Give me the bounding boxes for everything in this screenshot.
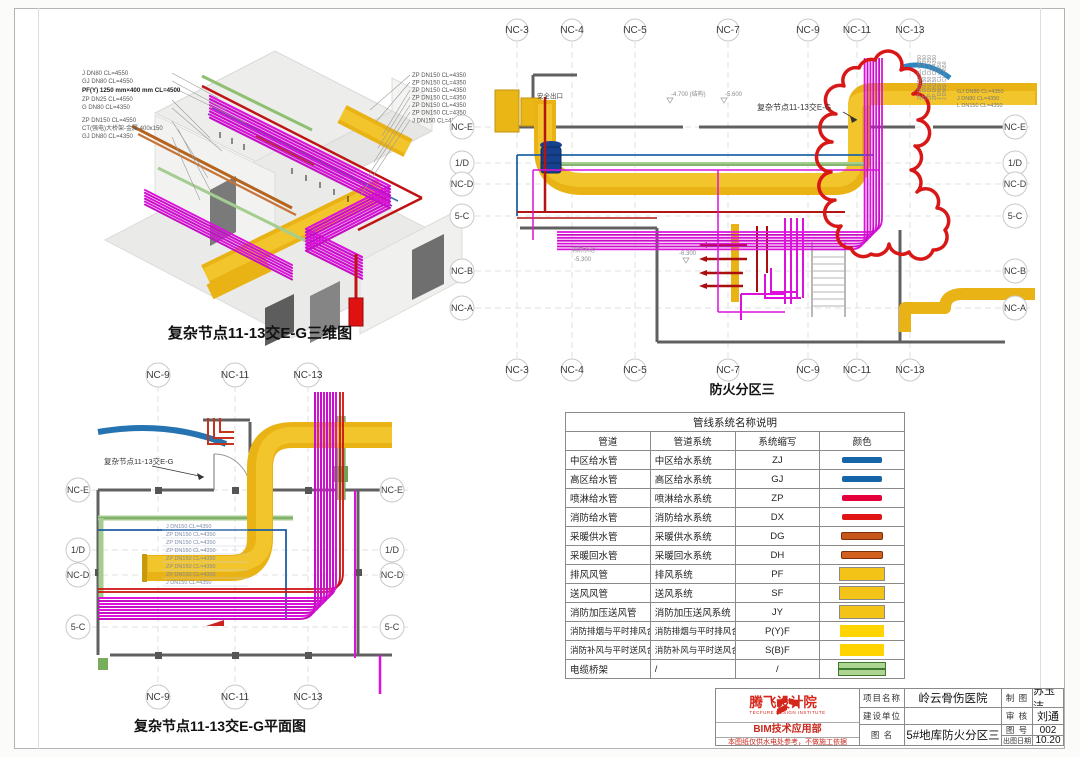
pipe-tag: ZP DN150 CL=4350 — [166, 572, 216, 578]
system-name: 采暖回水系统 — [650, 546, 735, 565]
reviewer-label: 审 核 — [1001, 707, 1032, 724]
pipe-tag: ZP DN150 CL=4350 — [166, 540, 216, 546]
legend-row: 高区给水管高区给水系统GJ — [566, 470, 905, 489]
project-name-value: 岭云骨伤医院 — [904, 689, 1001, 707]
company-area: 腾飞设计院 TECFURE DESIGN INSTITUTE BIM技术应用部 … — [716, 689, 859, 747]
pipe-tag: GJ DN80 CL=4550 — [82, 79, 134, 85]
pipe-name: 消防给水管 — [566, 508, 651, 527]
pipe-tag: ZP DN150 CL=4350 — [166, 564, 216, 570]
system-name: 消防给水系统 — [650, 508, 735, 527]
plan-title: 防火分区三 — [709, 382, 774, 397]
pipe-name: 中区给水管 — [566, 451, 651, 470]
grid-label: NC-E — [381, 485, 403, 495]
color-swatch — [820, 603, 905, 622]
reviewer-value: 刘通 — [1032, 707, 1063, 724]
grid-bubbles-left: NC-E 1/D NC-D 5-C NC-B NC-A — [450, 115, 474, 320]
disclaimer-text: 本图纸仅供水电处参考，不做施工依据 — [716, 737, 859, 747]
grid-label: NC-5 — [623, 365, 647, 376]
node-callout: 复杂节点11-13交E-G — [104, 456, 204, 480]
green-cable-tray — [98, 416, 348, 670]
system-code: PF — [735, 565, 820, 584]
pipe-name: 喷淋给水管 — [566, 489, 651, 508]
grid-bubbles-top: NC-3 NC-4 NC-5 NC-7 NC-9 NC-11 NC-13 — [505, 19, 925, 41]
title-block: 腾飞设计院 TECFURE DESIGN INSTITUTE BIM技术应用部 … — [715, 688, 1064, 746]
system-code: SF — [735, 584, 820, 603]
legend-header-color: 颜色 — [820, 432, 905, 451]
issue-date-value: 10.20 — [1032, 735, 1063, 745]
legend-header-pipe: 管道 — [566, 432, 651, 451]
pipe-name: 高区给水管 — [566, 470, 651, 489]
color-swatch — [820, 489, 905, 508]
pipe-tag: J DN80 CL=4550 — [82, 71, 129, 77]
system-name: 采暖供水系统 — [650, 527, 735, 546]
client-value — [904, 707, 1001, 724]
grid-label: NC-13 — [294, 692, 323, 703]
color-swatch — [820, 584, 905, 603]
issue-date-label: 出图日期 — [1001, 735, 1032, 745]
node-callout: 复杂节点11-13交E-G — [757, 102, 831, 112]
system-code: DH — [735, 546, 820, 565]
inner-frame-left — [38, 8, 39, 749]
grid-label: NC-7 — [716, 365, 740, 376]
pipe-tag: ZP DN150 CL=4350 — [166, 556, 216, 562]
system-code: P(Y)F — [735, 622, 820, 641]
color-swatch — [820, 641, 905, 660]
system-code: / — [735, 660, 820, 679]
drawing-no-label: 图 号 — [1001, 724, 1032, 735]
view-3d-title: 复杂节点11-13交E-G三维图 — [167, 324, 352, 342]
legend-row: 电缆桥架// — [566, 660, 905, 679]
legend-row: 喷淋给水管喷淋给水系统ZP — [566, 489, 905, 508]
plan-title: 复杂节点11-13交E-G平面图 — [133, 718, 306, 734]
grid-label: 1/D — [385, 545, 400, 555]
grid-label: NC-D — [451, 179, 474, 189]
grid-label: 5-C — [455, 211, 470, 221]
grid-bubbles-bottom: NC-3 NC-4 NC-5 NC-7 NC-9 NC-11 NC-13 — [505, 359, 925, 381]
grid-label: NC-11 — [843, 365, 872, 376]
grid-label: NC-9 — [796, 365, 820, 376]
drawing-name-label: 图 名 — [859, 724, 904, 745]
system-code: JY — [735, 603, 820, 622]
legend-row: 排风风管排风系统PF — [566, 565, 905, 584]
elevation-label: -5.600 — [725, 92, 743, 98]
pipe-tag: GJ DN80 CL=4350 — [957, 89, 1004, 95]
color-swatch — [820, 546, 905, 565]
grid-label: NC-E — [451, 122, 473, 132]
legend-header-system: 管道系统 — [650, 432, 735, 451]
pool-elevation: -5.300 — [574, 257, 592, 263]
color-swatch — [820, 451, 905, 470]
grid-label: NC-11 — [843, 25, 872, 36]
system-code: GJ — [735, 470, 820, 489]
pipe-name: 采暖供水管 — [566, 527, 651, 546]
building-slabs — [105, 51, 462, 346]
grid-label: NC-B — [451, 266, 473, 276]
system-name: 排风系统 — [650, 565, 735, 584]
pipe-tag: L DN150 CL=4350 — [957, 103, 1003, 109]
legend-row: 消防给水管消防给水系统DX — [566, 508, 905, 527]
pipe-tag: J DN150 CL=4350 — [166, 580, 211, 586]
pipe-tag: J DN150 CL=4350 — [166, 524, 211, 530]
drawing-sheet-canvas: J DN80 CL=4550 GJ DN80 CL=4550 PF(Y) 125… — [0, 0, 1080, 757]
grid-label: 1/D — [455, 158, 470, 168]
grid-label: NC-13 — [294, 370, 323, 381]
pipe-system-legend: 管线系统名称说明 管道 管道系统 系统缩写 颜色 中区给水管中区给水系统ZJ 高… — [565, 412, 905, 679]
legend-row: 送风风管送风系统SF — [566, 584, 905, 603]
color-swatch — [820, 565, 905, 584]
color-swatch — [820, 527, 905, 546]
system-name: 消防排烟与平时排风合用系统 — [650, 622, 735, 641]
pipe-tag: CT(强电)大桥架-金属 400x150 — [82, 124, 163, 132]
grid-label: NC-D — [1004, 179, 1027, 189]
pipe-name: 排风风管 — [566, 565, 651, 584]
walls — [505, 75, 1005, 342]
color-swatch — [820, 508, 905, 527]
system-name: 消防补风与平时送风合用系统 — [650, 641, 735, 660]
grid-label: NC-D — [381, 570, 404, 580]
pipe-name: 消防加压送风管 — [566, 603, 651, 622]
plan-fire-zone-3: 复杂节点11-13交E-G 安全出口 -4.700 (结构) -5.600 消防… — [445, 12, 1065, 404]
system-code: DG — [735, 527, 820, 546]
system-name: / — [650, 660, 735, 679]
pipe-tag: ZP DN150 CL=4350 — [166, 548, 216, 554]
pipe-name: 消防排烟与平时排风合用风管 — [566, 622, 651, 641]
legend-row: 采暖供水管采暖供水系统DG — [566, 527, 905, 546]
view-3d: J DN80 CL=4550 GJ DN80 CL=4550 PF(Y) 125… — [60, 18, 455, 348]
grid-label: NC-11 — [221, 692, 250, 703]
system-name: 高区给水系统 — [650, 470, 735, 489]
grid-label: NC-9 — [146, 692, 170, 703]
grid-bubbles-top: NC-9 NC-11 NC-13 — [146, 363, 323, 387]
system-name: 喷淋给水系统 — [650, 489, 735, 508]
grid-label: NC-B — [1004, 266, 1026, 276]
pipe-tag: ZP DN150 CL=4350 — [166, 532, 216, 538]
pipe-tag: ZP DN25 CL=4550 — [82, 97, 133, 103]
elevation-label: -6.300 — [679, 251, 697, 257]
grid-label: NC-A — [451, 303, 473, 313]
department-label: BIM技术应用部 — [716, 722, 859, 737]
grid-label: NC-9 — [146, 370, 170, 381]
system-name: 中区给水系统 — [650, 451, 735, 470]
grid-label: 1/D — [1008, 158, 1023, 168]
legend-title: 管线系统名称说明 — [566, 413, 905, 432]
pipe-name: 送风风管 — [566, 584, 651, 603]
grid-label: NC-13 — [896, 365, 925, 376]
project-name-label: 项目名称 — [859, 689, 904, 707]
grid-bubbles-left: NC-E 1/D NC-D 5-C — [66, 478, 90, 639]
grid-label: NC-4 — [560, 25, 584, 36]
legend-row: 消防加压送风管消防加压送风系统JY — [566, 603, 905, 622]
drafter-label: 制 图 — [1001, 689, 1032, 707]
color-swatch — [820, 470, 905, 489]
system-name: 消防加压送风系统 — [650, 603, 735, 622]
legend-row: 中区给水管中区给水系统ZJ — [566, 451, 905, 470]
grid-label: NC-A — [1004, 303, 1026, 313]
node-callout-label: 复杂节点11-13交E-G — [104, 456, 174, 466]
pipe-name: 采暖回水管 — [566, 546, 651, 565]
legend-row: 消防排烟与平时排风合用风管消防排烟与平时排风合用系统P(Y)F — [566, 622, 905, 641]
grid-label: NC-D — [67, 570, 90, 580]
grid-label: 5-C — [385, 622, 400, 632]
walls — [95, 420, 392, 659]
grid-label: NC-E — [67, 485, 89, 495]
grid-label: 5-C — [1008, 211, 1023, 221]
grid-label: 1/D — [71, 545, 86, 555]
grid-label: NC-E — [1004, 122, 1026, 132]
grid-label: NC-11 — [221, 370, 250, 381]
grid-label: NC-3 — [505, 365, 529, 376]
client-label: 建设单位 — [859, 707, 904, 724]
system-code: S(B)F — [735, 641, 820, 660]
system-code: DX — [735, 508, 820, 527]
pipe-tag-vertical: J DN80 CL=4550 — [942, 61, 948, 100]
pipe-tag: J DN80 CL=4350 — [957, 96, 999, 102]
grid-label: NC-4 — [560, 365, 584, 376]
pipe-name: 电缆桥架 — [566, 660, 651, 679]
color-swatch — [820, 660, 905, 679]
color-swatch — [820, 622, 905, 641]
legend-header-code: 系统缩写 — [735, 432, 820, 451]
grid-label: NC-3 — [505, 25, 529, 36]
pipe-tag: ZP DN150 CL=4550 — [82, 118, 137, 124]
plan-node-detail: J DN150 CL=4350 ZP DN150 CL=4350 ZP DN15… — [58, 358, 450, 750]
system-name: 送风系统 — [650, 584, 735, 603]
drafter-value: 苏玉洁 — [1032, 689, 1063, 707]
grid-label: NC-5 — [623, 25, 647, 36]
system-code: ZP — [735, 489, 820, 508]
pool-label: 消防水池 — [571, 246, 595, 254]
exit-label: 安全出口 — [537, 91, 563, 100]
grid-label: 5-C — [71, 622, 86, 632]
grid-label: NC-13 — [896, 25, 925, 36]
grid-bubbles-right: NC-E 1/D NC-D 5-C — [380, 478, 404, 639]
elevation-label: -4.700 (结构) — [671, 90, 706, 98]
pipe-tag: GJ DN80 CL=4350 — [82, 134, 134, 140]
grid-label: NC-9 — [796, 25, 820, 36]
system-code: ZJ — [735, 451, 820, 470]
legend-row: 消防补风与平时送风合用风管消防补风与平时送风合用系统S(B)F — [566, 641, 905, 660]
legend-row: 采暖回水管采暖回水系统DH — [566, 546, 905, 565]
drawing-no-value: 002 — [1032, 724, 1063, 735]
company-logo-icon — [776, 696, 800, 715]
pipe-tag-bold: PF(Y) 1250 mm×400 mm CL=4500 — [82, 87, 181, 94]
grid-bubbles-bottom: NC-9 NC-11 NC-13 — [146, 685, 323, 709]
pipe-name: 消防补风与平时送风合用风管 — [566, 641, 651, 660]
pipe-tag: G DN80 CL=4350 — [82, 105, 131, 111]
grid-label: NC-7 — [716, 25, 740, 36]
drawing-name-value: 5#地库防火分区三 — [904, 724, 1001, 745]
